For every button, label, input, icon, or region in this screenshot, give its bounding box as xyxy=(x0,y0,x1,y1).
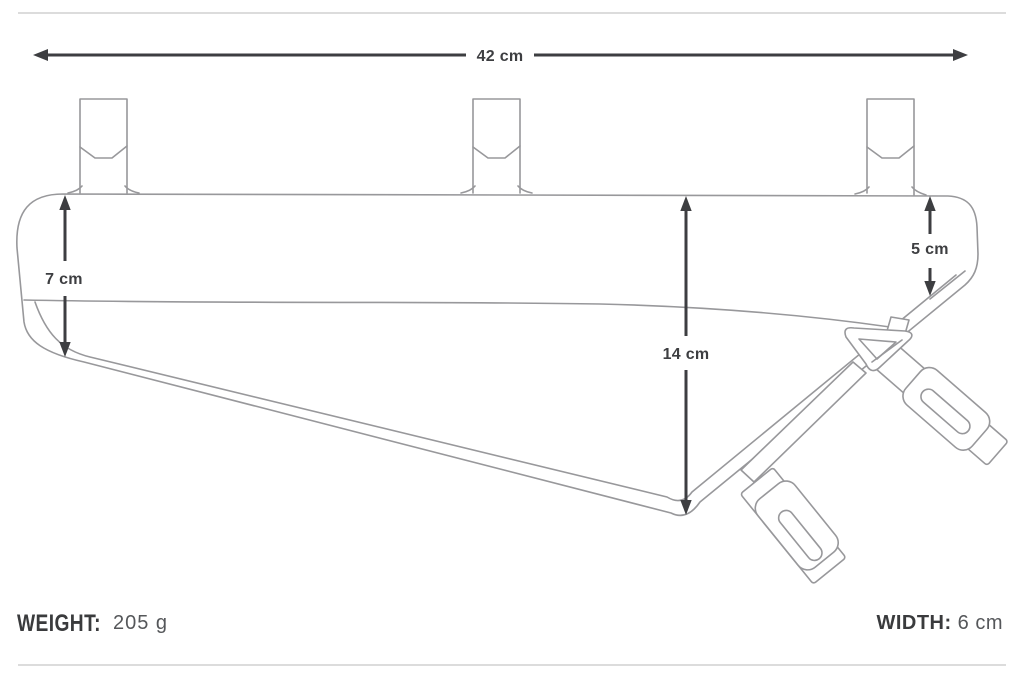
dim-label-middle-height: 14 cm xyxy=(663,346,710,363)
strap-chevron xyxy=(473,146,520,158)
dimension-width-top: 42 cm xyxy=(33,48,968,65)
bag-outline xyxy=(17,194,978,515)
top-strap-right xyxy=(855,99,926,195)
width-spec: WIDTH:6 cm xyxy=(876,612,1003,635)
dim-label-right-height: 5 cm xyxy=(911,241,949,258)
dim-label-left-height: 7 cm xyxy=(45,271,83,288)
strap-body xyxy=(867,99,914,195)
strap-flare xyxy=(461,186,532,193)
strap-chevron xyxy=(80,146,127,158)
width-value: 6 cm xyxy=(958,612,1003,634)
buckle-strap-lower xyxy=(740,464,850,584)
weight-label: WEIGHT: xyxy=(17,610,101,638)
diagram-drawing: 42 cm 7 cm 14 cm 5 cm xyxy=(0,0,1024,680)
strap-body xyxy=(80,99,127,193)
top-strap-left xyxy=(68,99,139,193)
top-strap-middle xyxy=(461,99,532,193)
width-label: WIDTH: xyxy=(876,612,951,634)
strap-chevron xyxy=(867,146,914,158)
arrowhead-left-icon xyxy=(33,49,48,61)
strap-flare xyxy=(68,186,139,193)
arrowhead-right-icon xyxy=(953,49,968,61)
dim-label-top-width: 42 cm xyxy=(477,48,524,65)
frame-pack-dimension-diagram: 42 cm 7 cm 14 cm 5 cm WEIGHT: 205 g WIDT… xyxy=(0,0,1024,680)
strap-body xyxy=(473,99,520,193)
strap-flare xyxy=(855,187,926,195)
weight-value: 205 g xyxy=(113,612,168,635)
